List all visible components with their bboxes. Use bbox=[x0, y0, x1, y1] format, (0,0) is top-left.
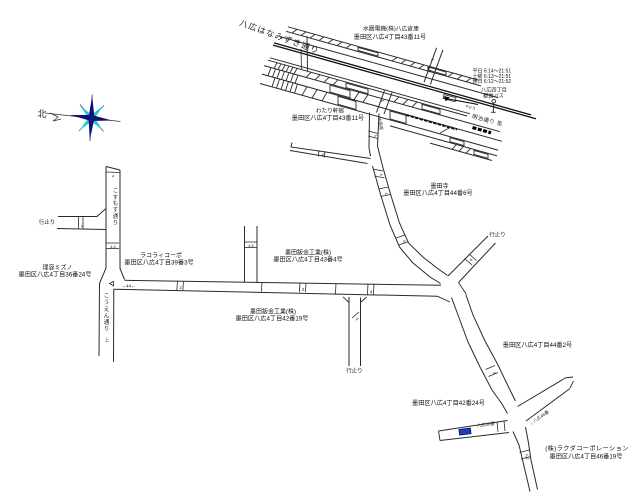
svg-text:通: 通 bbox=[104, 318, 110, 326]
svg-text:す: す bbox=[113, 207, 118, 214]
svg-text:行止り: 行止り bbox=[489, 231, 505, 239]
svg-text:4.5: 4.5 bbox=[248, 243, 254, 248]
svg-text:4.5: 4.5 bbox=[110, 244, 116, 249]
svg-text:ラコラィコーポ: ラコラィコーポ bbox=[140, 252, 182, 260]
svg-text:も: も bbox=[113, 200, 118, 207]
svg-text:墨田鈑金工業(株): 墨田鈑金工業(株) bbox=[250, 308, 296, 316]
svg-text:墨田区八広4丁目43番11号: 墨田区八広4丁目43番11号 bbox=[292, 114, 364, 122]
svg-text:墨田寺: 墨田寺 bbox=[430, 182, 448, 190]
svg-text:行止り: 行止り bbox=[346, 367, 362, 375]
svg-text:水圏電機(株)八広倉庫: 水圏電機(株)八広倉庫 bbox=[363, 25, 419, 33]
svg-text:う: う bbox=[104, 299, 110, 306]
svg-text:墨田区八広4丁目42番19号: 墨田区八広4丁目42番19号 bbox=[236, 315, 309, 323]
svg-text:り: り bbox=[113, 219, 118, 226]
svg-text:墨田区八広4丁目43番11号: 墨田区八広4丁目43番11号 bbox=[354, 33, 426, 41]
svg-text:上: 上 bbox=[105, 336, 109, 342]
svg-text:り: り bbox=[104, 326, 110, 333]
svg-text:休日 6:12～21:52: 休日 6:12～21:52 bbox=[473, 78, 512, 85]
svg-text:墨田区八広4丁目43番4号: 墨田区八広4丁目43番4号 bbox=[273, 256, 342, 264]
svg-text:す: す bbox=[113, 194, 118, 201]
svg-text:わたり軒宿: わたり軒宿 bbox=[316, 107, 344, 115]
svg-text:こ: こ bbox=[104, 293, 110, 300]
svg-text:→44←: →44← bbox=[122, 284, 136, 289]
svg-text:墨田区八広4丁目44番2号: 墨田区八広4丁目44番2号 bbox=[503, 341, 572, 349]
svg-text:墨田区八広4丁目39番3号: 墨田区八広4丁目39番3号 bbox=[124, 259, 193, 267]
svg-text:墨田区八広4丁目42番24号: 墨田区八広4丁目42番24号 bbox=[412, 399, 485, 407]
svg-text:都営バス: 都営バス bbox=[483, 92, 504, 100]
svg-text:ん: ん bbox=[104, 312, 110, 319]
svg-text:墨田鈑金工業(株): 墨田鈑金工業(株) bbox=[285, 249, 331, 257]
svg-text:4: 4 bbox=[112, 175, 114, 179]
svg-text:(株)ラクダコーポレーション: (株)ラクダコーポレーション bbox=[545, 445, 629, 453]
svg-text:墨田区八広4丁目46番19号: 墨田区八広4丁目46番19号 bbox=[550, 453, 623, 461]
svg-text:八広四丁目: 八広四丁目 bbox=[481, 86, 507, 94]
svg-text:理容ミズノ: 理容ミズノ bbox=[42, 264, 72, 272]
svg-text:え: え bbox=[104, 306, 110, 313]
svg-text:墨田区八広4丁目36番24号: 墨田区八広4丁目36番24号 bbox=[19, 271, 92, 279]
svg-text:墨田区八広4丁目44番6号: 墨田区八広4丁目44番6号 bbox=[403, 189, 472, 197]
svg-text:通: 通 bbox=[113, 212, 119, 220]
svg-text:行止り: 行止り bbox=[39, 218, 55, 226]
svg-text:北: 北 bbox=[37, 109, 46, 119]
svg-text:こ: こ bbox=[113, 187, 118, 194]
